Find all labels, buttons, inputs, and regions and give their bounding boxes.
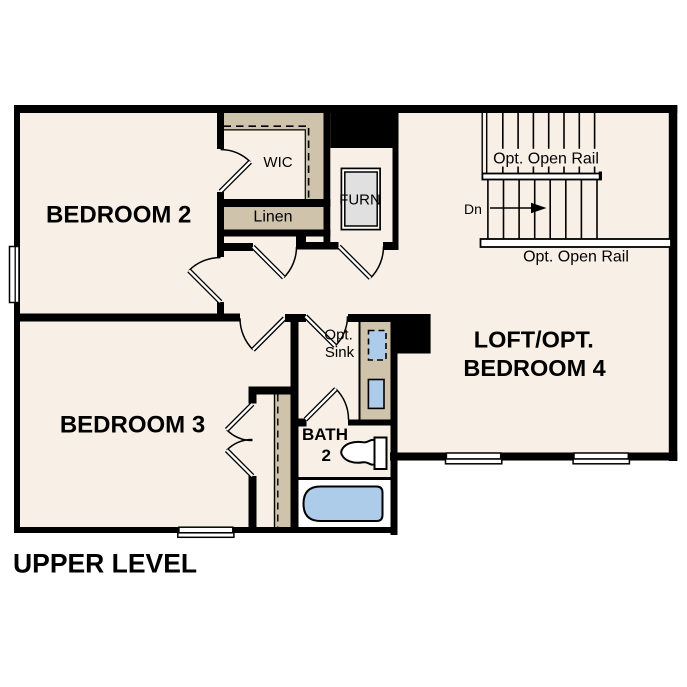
svg-text:LOFT/OPT.: LOFT/OPT. (474, 327, 594, 353)
svg-text:Opt. Open Rail: Opt. Open Rail (493, 151, 599, 168)
svg-text:Dn: Dn (464, 201, 482, 217)
svg-text:Opt. Open Rail: Opt. Open Rail (523, 249, 629, 266)
svg-text:Sink: Sink (325, 344, 355, 361)
svg-text:BEDROOM 4: BEDROOM 4 (463, 355, 605, 381)
svg-text:WIC: WIC (263, 154, 292, 171)
svg-text:UPPER LEVEL: UPPER LEVEL (13, 549, 197, 579)
svg-text:2: 2 (321, 446, 330, 465)
svg-text:BEDROOM 2: BEDROOM 2 (46, 202, 191, 229)
svg-text:BATH: BATH (302, 425, 348, 444)
svg-text:Opt.: Opt. (324, 327, 352, 344)
svg-text:BEDROOM 3: BEDROOM 3 (60, 412, 205, 439)
svg-text:FURN: FURN (339, 192, 381, 209)
svg-text:Linen: Linen (253, 209, 292, 226)
